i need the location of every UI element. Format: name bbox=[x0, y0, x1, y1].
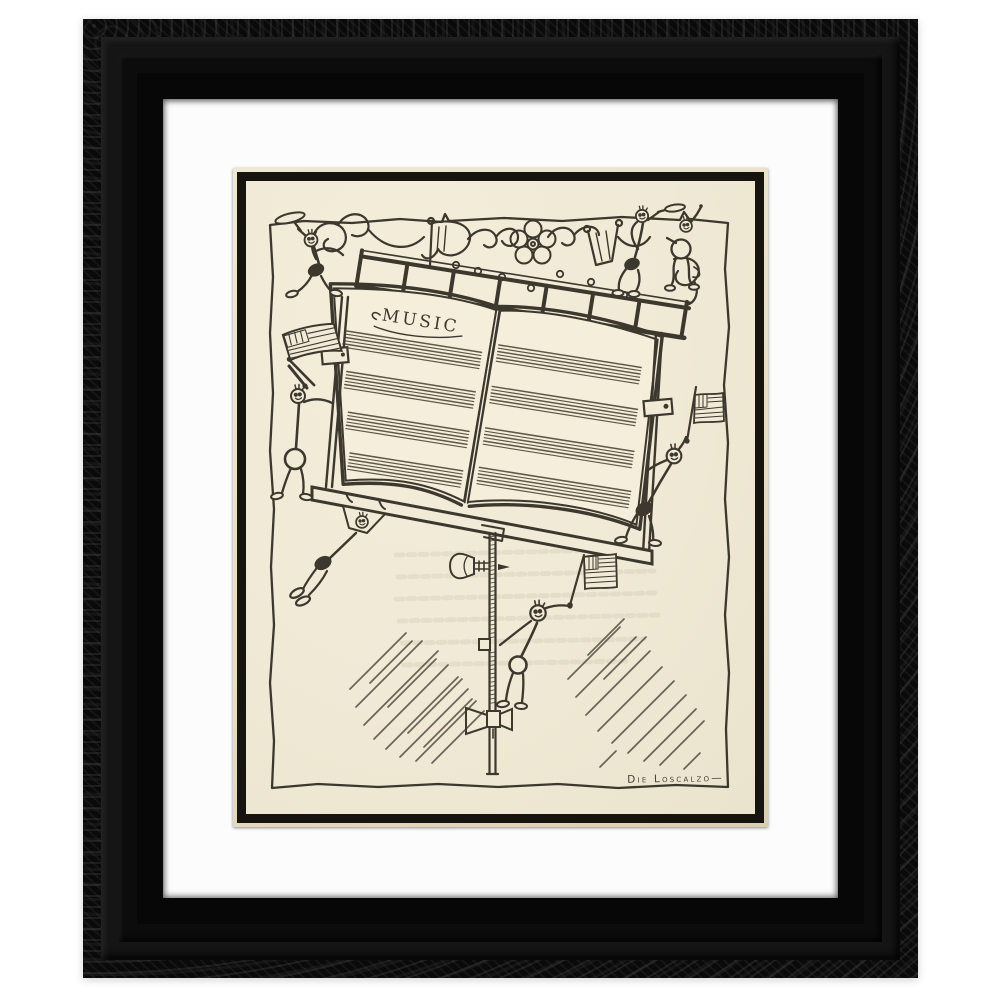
print-paper: MUSIC bbox=[246, 181, 755, 814]
drawn-line bbox=[374, 665, 448, 739]
drawn-line bbox=[600, 751, 616, 767]
us-flag-icon bbox=[684, 387, 724, 444]
drawn-line bbox=[350, 633, 406, 689]
drawn-line bbox=[628, 695, 686, 753]
stand-clamp-right bbox=[643, 399, 672, 416]
framed-print-photo: MUSIC bbox=[0, 0, 1000, 1000]
drawn-line bbox=[399, 615, 658, 621]
drawn-line bbox=[684, 753, 700, 769]
note-character-flag-left bbox=[271, 366, 332, 501]
drawn-line bbox=[644, 709, 696, 761]
drawn-line bbox=[660, 721, 704, 765]
scroll-curl-right bbox=[674, 258, 699, 305]
stand-pole bbox=[450, 533, 512, 774]
pole-collar bbox=[479, 639, 490, 650]
drawn-line bbox=[386, 677, 458, 749]
scroll-leaf bbox=[338, 214, 369, 236]
drawn-line bbox=[400, 689, 468, 757]
drawn-line bbox=[396, 593, 656, 599]
us-flag-icon bbox=[567, 554, 617, 608]
drawn-line bbox=[604, 637, 646, 679]
swag-left bbox=[368, 229, 424, 247]
drawn-line bbox=[424, 699, 472, 747]
illustration: MUSIC bbox=[246, 181, 755, 814]
lyre-cup-icon bbox=[584, 220, 622, 265]
note-character-hanging bbox=[289, 506, 385, 607]
drawn-line bbox=[408, 679, 462, 733]
drawn-line bbox=[576, 637, 636, 697]
floor-hatching-left bbox=[350, 633, 484, 763]
round-character bbox=[665, 204, 703, 291]
artist-signature: Die Loscalzo— bbox=[627, 772, 724, 786]
drawn-line bbox=[612, 681, 674, 743]
lyre-icon bbox=[422, 218, 470, 265]
pole-pointer bbox=[498, 564, 510, 570]
mat-opening-bevel: MUSIC bbox=[233, 168, 768, 827]
music-stand-tilted-group: MUSIC bbox=[299, 246, 690, 535]
scroll-mid-right bbox=[548, 228, 575, 246]
scroll-mid-left bbox=[468, 230, 497, 248]
